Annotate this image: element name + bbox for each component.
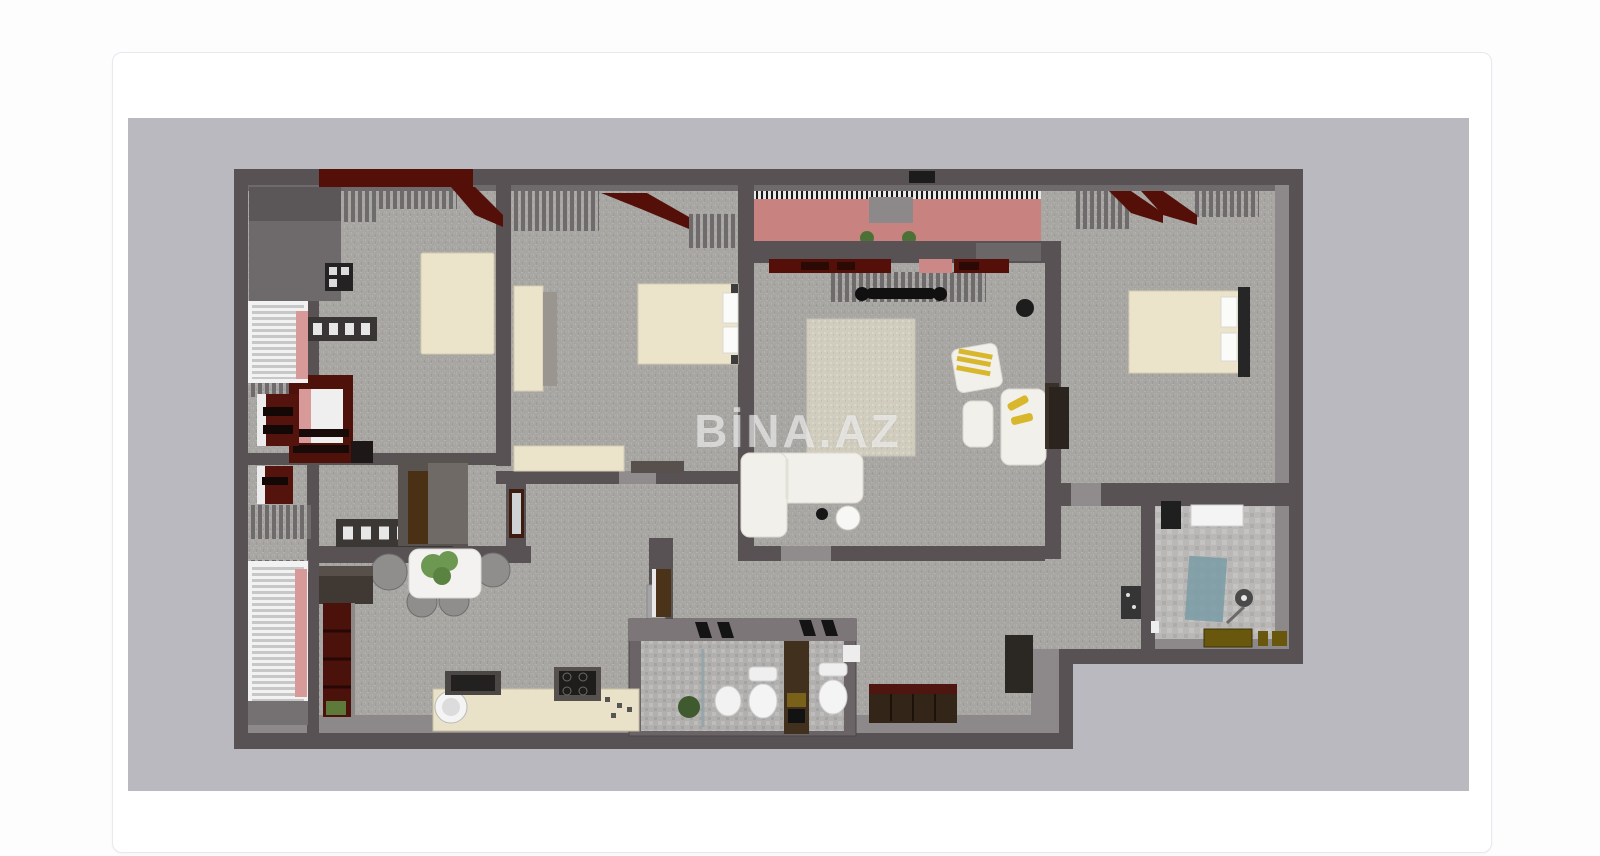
plant-icon xyxy=(678,696,700,718)
cabinet xyxy=(1161,501,1181,529)
listing-card: BİNA.AZ xyxy=(112,52,1492,853)
toilet xyxy=(819,680,847,714)
shower-glass xyxy=(1185,556,1227,622)
headboard xyxy=(1238,287,1250,377)
wall-window-slot xyxy=(909,171,935,183)
ottoman xyxy=(963,401,993,447)
floorplan-image[interactable]: BİNA.AZ xyxy=(128,118,1469,791)
cabinet xyxy=(1005,635,1033,693)
tv xyxy=(867,288,935,299)
wall-shade xyxy=(976,243,1041,261)
armchair xyxy=(951,342,1004,393)
switch-panel xyxy=(1121,586,1141,619)
toilet xyxy=(749,684,777,718)
towel xyxy=(843,645,860,662)
dresser xyxy=(514,446,624,471)
wall-clock-icon xyxy=(1016,299,1034,317)
wardrobe xyxy=(514,286,543,391)
side-table xyxy=(836,506,860,530)
balcony-top xyxy=(754,185,1041,245)
floor-lamp-icon xyxy=(816,508,828,520)
bath-cabinet xyxy=(1204,629,1252,647)
curtain-pink xyxy=(919,259,952,273)
dresser xyxy=(1049,387,1069,449)
sink xyxy=(1191,505,1243,526)
watermark: BİNA.AZ xyxy=(694,404,902,458)
chair xyxy=(371,554,407,590)
bed xyxy=(421,253,494,354)
wc-sink xyxy=(715,686,741,716)
